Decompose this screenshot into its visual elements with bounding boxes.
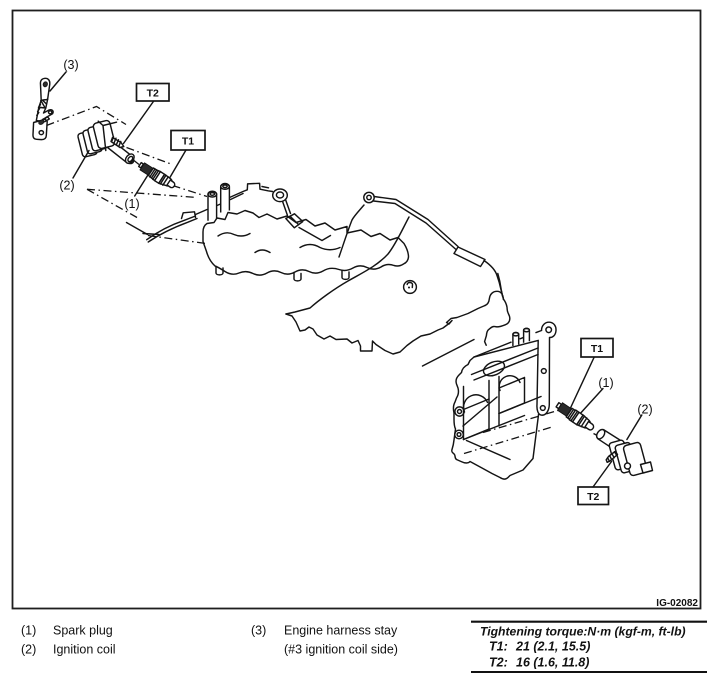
svg-text:IG-02082: IG-02082 (656, 598, 698, 609)
svg-text:(3): (3) (251, 624, 266, 638)
svg-text:16 (1.6, 11.8): 16 (1.6, 11.8) (516, 656, 589, 670)
svg-text:T1:: T1: (489, 640, 508, 654)
svg-text:Engine harness stay: Engine harness stay (284, 624, 398, 638)
svg-text:(2): (2) (637, 403, 652, 417)
svg-text:(1): (1) (598, 376, 613, 390)
svg-text:T1: T1 (182, 136, 194, 148)
svg-text:(3): (3) (63, 58, 78, 72)
svg-text:(1): (1) (124, 197, 139, 211)
svg-text:Tightening torque:N·m (kgf-m,: Tightening torque:N·m (kgf-m, ft-lb) (480, 625, 686, 639)
svg-text:(#3 ignition coil side): (#3 ignition coil side) (284, 643, 398, 657)
svg-text:(2): (2) (59, 179, 74, 193)
svg-text:Ignition coil: Ignition coil (53, 643, 116, 657)
svg-text:(1): (1) (21, 624, 36, 638)
svg-text:T2:: T2: (489, 656, 508, 670)
svg-text:(2): (2) (21, 643, 36, 657)
svg-text:T1: T1 (591, 343, 603, 355)
svg-text:T2: T2 (587, 491, 599, 503)
svg-text:21 (2.1, 15.5): 21 (2.1, 15.5) (515, 640, 590, 654)
svg-text:T2: T2 (147, 88, 159, 100)
svg-text:Spark plug: Spark plug (53, 624, 113, 638)
